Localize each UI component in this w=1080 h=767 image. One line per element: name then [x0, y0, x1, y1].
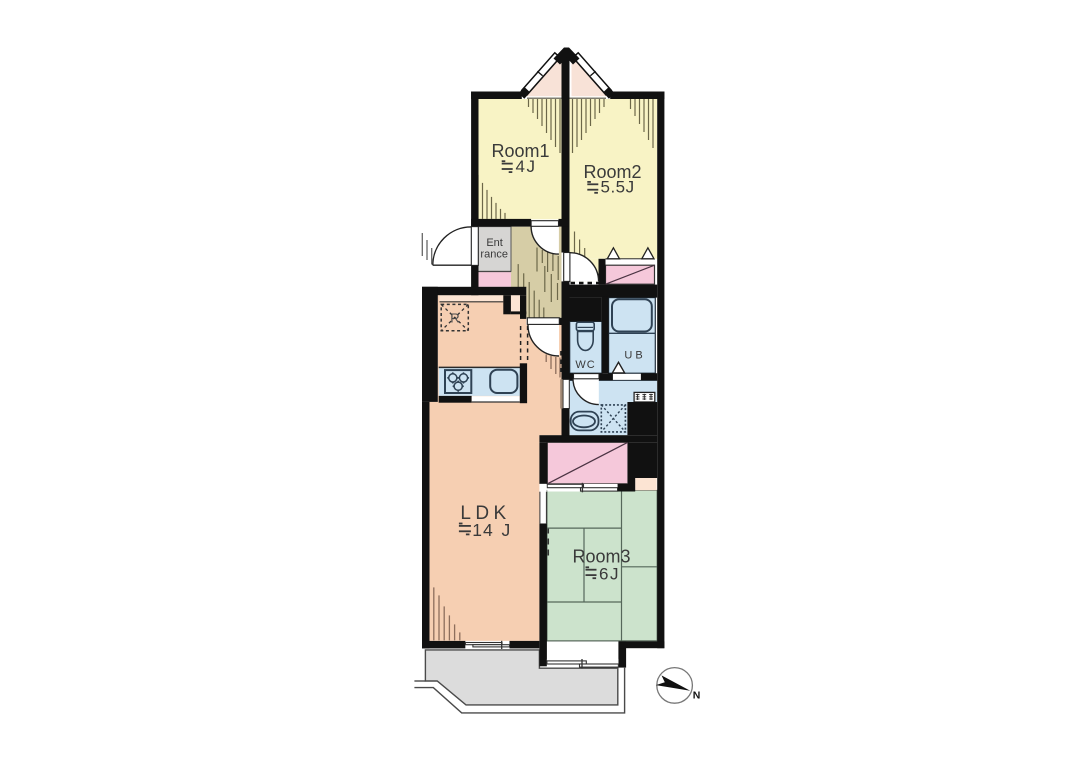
svg-text:14: 14	[472, 520, 493, 540]
svg-text:6J: 6J	[599, 565, 620, 584]
svg-text:J: J	[502, 520, 511, 540]
svg-text:R: R	[450, 311, 459, 326]
svg-text:Ent: Ent	[486, 237, 503, 249]
svg-text:Room3: Room3	[572, 547, 630, 567]
svg-text:4J: 4J	[516, 157, 537, 176]
svg-text:U B: U B	[624, 349, 642, 361]
svg-text:5.5J: 5.5J	[601, 178, 635, 197]
svg-text:rance: rance	[480, 249, 508, 261]
svg-text:N: N	[693, 689, 701, 701]
svg-text:WC: WC	[575, 359, 595, 371]
